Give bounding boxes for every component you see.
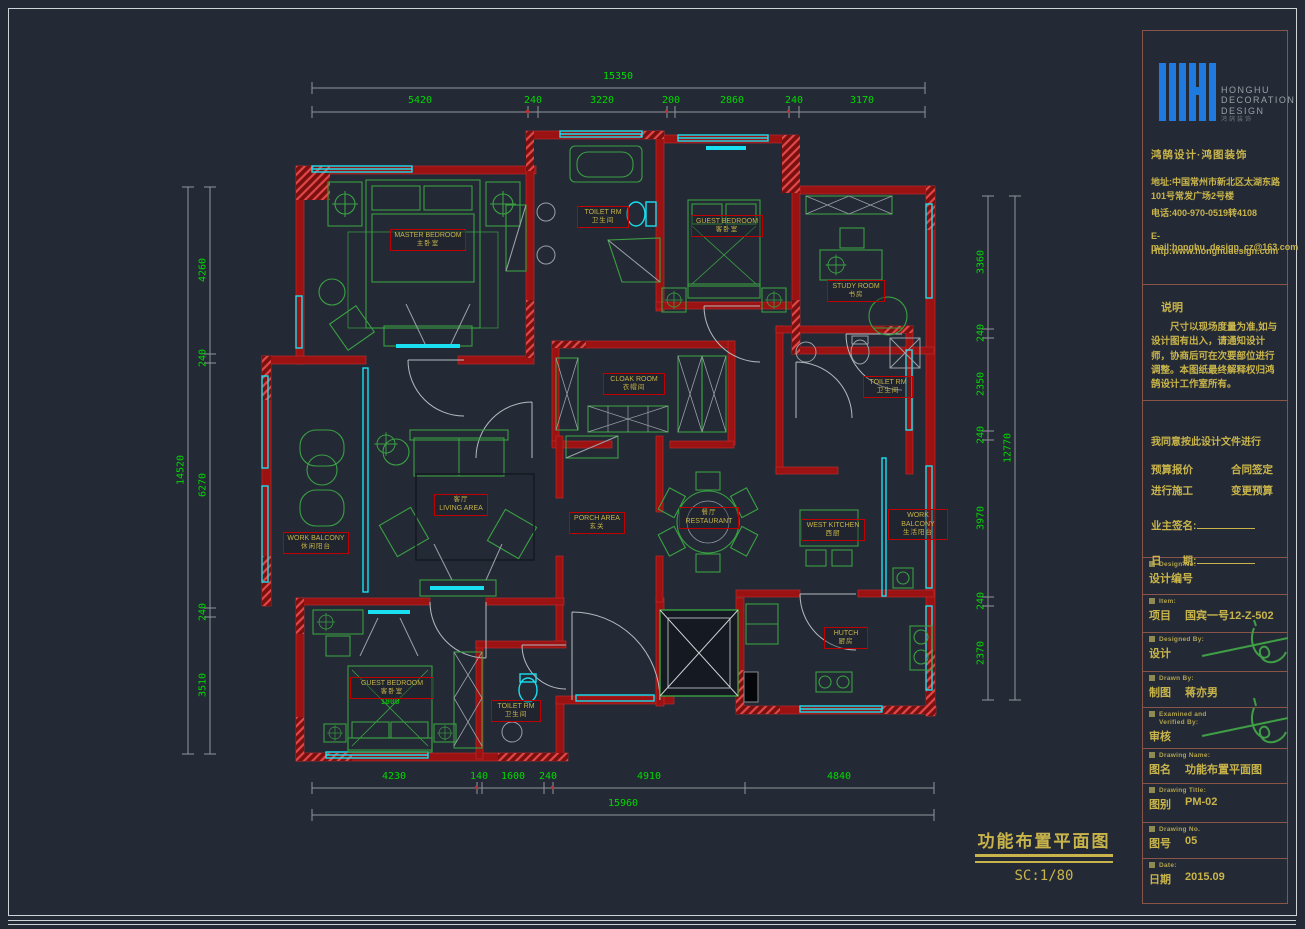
dim-right-seg: 2370	[976, 641, 987, 665]
row-en-label: Drawing Name:	[1159, 752, 1210, 759]
room-cn: 卫生间	[866, 387, 910, 395]
drawing-caption: 功能布置平面图 SC:1/80	[975, 827, 1113, 884]
dim-top-total: 15350	[603, 71, 633, 82]
logo-wordmark: HONGHU DECORATION DESIGN 鸿鹄装饰	[1221, 85, 1295, 124]
agreement-opt: 变更预算	[1231, 483, 1273, 498]
elevator-shaft	[660, 610, 738, 696]
title-block-contact-section: HONGHU DECORATION DESIGN 鸿鹄装饰 鸿鹄设计·鸿图装饰 …	[1143, 31, 1287, 284]
title-block-agreement-section: 我同意按此设计文件进行 预算报价 合同签定 进行施工 变更预算 业主签名: 日 …	[1143, 400, 1287, 557]
room-en: CLOAK ROOM	[606, 375, 662, 384]
row-en-label: Drawn By:	[1159, 675, 1194, 682]
row-item: Item: 项目国宾一号12-Z-502	[1143, 594, 1287, 632]
row-en-label: Designed By:	[1159, 636, 1204, 643]
agreement-opt: 进行施工	[1151, 483, 1193, 498]
dim-right-seg: 3360	[976, 250, 987, 274]
notes-heading: 说明	[1161, 299, 1287, 315]
row-drawing-title: Drawing Title: 图别PM-02	[1143, 783, 1287, 822]
dim-right-seg: 240	[976, 324, 987, 342]
room-cn: 衣帽间	[606, 384, 662, 392]
agreement-options-row1: 预算报价 合同签定	[1151, 462, 1273, 477]
logo-bar	[1209, 63, 1216, 121]
room-cn: 客厅	[437, 496, 485, 504]
bullet-icon	[1149, 787, 1155, 793]
room-label-toilet-bottom: TOILET RM 卫生间	[491, 700, 541, 722]
room-cn: 餐厅	[682, 509, 736, 517]
room-en: GUEST BEDROOM	[353, 679, 431, 688]
room-cn: 卫生间	[580, 217, 626, 225]
row-cn-label: 项目	[1149, 607, 1171, 623]
row-value: 功能布置平面图	[1185, 761, 1262, 777]
dim-bottom-seg: 140	[470, 771, 488, 782]
bullet-icon	[1149, 675, 1155, 681]
room-en: TOILET RM	[580, 208, 626, 217]
room-cn: 书房	[830, 291, 882, 299]
logo-bar	[1179, 63, 1186, 121]
dim-left-seg: 240	[198, 349, 209, 367]
room-en: TOILET RM	[866, 378, 910, 387]
room-cn: 厨房	[827, 638, 865, 646]
dim-bottom-seg: 240	[539, 771, 557, 782]
room-en: MASTER BEDROOM	[393, 231, 463, 240]
room-label-work-balcony-right: WORK BALCONY 生活阳台	[888, 509, 948, 540]
room-label-toilet-top: TOILET RM 卫生间	[577, 206, 629, 228]
row-value: 05	[1185, 835, 1197, 851]
website-line: Http:www.honghudesign.com	[1151, 246, 1278, 257]
row-value: PM-02	[1185, 796, 1217, 812]
row-en-label: Drawing Title:	[1159, 787, 1206, 794]
row-cn-label: 制图	[1149, 684, 1171, 700]
room-en: WORK BALCONY	[286, 534, 346, 543]
logo-line: DESIGN	[1221, 106, 1295, 116]
owner-sign-label: 业主签名:	[1151, 520, 1197, 532]
dim-bottom-seg: 1600	[501, 771, 525, 782]
row-cn-label: 图号	[1149, 835, 1171, 851]
dim-left-seg: 6270	[198, 473, 209, 497]
row-drawing-no: Drawing No. 图号05	[1143, 822, 1287, 858]
dim-top-seg: 3220	[590, 95, 614, 106]
bullet-icon	[1149, 711, 1155, 717]
room-en: LIVING AREA	[437, 504, 485, 513]
signature-rule	[1197, 518, 1255, 529]
room-en: WORK BALCONY	[891, 511, 945, 529]
row-drawing-name: Drawing Name: 图名功能布置平面图	[1143, 748, 1287, 783]
room-cn: 卫生间	[494, 711, 538, 719]
caption-underline	[975, 854, 1113, 857]
row-en-label: Item:	[1159, 598, 1176, 605]
dim-top-seg: 3170	[850, 95, 874, 106]
row-designed-by: Designed By: 设计	[1143, 632, 1287, 671]
room-label-master-bedroom: MASTER BEDROOM 主卧室	[390, 229, 466, 251]
room-label-guest-bedroom-bottom: GUEST BEDROOM 客卧室	[350, 677, 434, 699]
phone-line: 电话:400-970-0519转4108	[1151, 208, 1257, 219]
title-block: HONGHU DECORATION DESIGN 鸿鹄装饰 鸿鹄设计·鸿图装饰 …	[1142, 30, 1288, 904]
bullet-icon	[1149, 598, 1155, 604]
cad-drawing-sheet: 15350 5420 240 3220 200 2860 240 3170 42…	[0, 0, 1305, 929]
room-label-porch-area: PORCH AREA 玄关	[569, 512, 625, 534]
dim-top-seg: 5420	[408, 95, 432, 106]
row-date: Date: 日期2015.09	[1143, 858, 1287, 905]
logo-connector	[1189, 87, 1201, 95]
agreement-opt: 合同签定	[1231, 462, 1273, 477]
row-value: 国宾一号12-Z-502	[1185, 607, 1274, 623]
row-en-label: Examined and	[1159, 711, 1207, 718]
drawing-scale: SC:1/80	[975, 868, 1113, 884]
dim-left-total: 14520	[176, 455, 187, 485]
date-signature-line: 日 期:	[1151, 553, 1279, 568]
room-cn: 玄关	[572, 523, 622, 531]
logo-bar	[1169, 63, 1176, 121]
row-value: 2015.09	[1185, 871, 1225, 887]
address-line1: 地址:中国常州市新北区太湖东路	[1151, 177, 1280, 188]
dim-right-total: 12770	[1003, 433, 1014, 463]
dim-top-seg: 200	[662, 95, 680, 106]
row-en-label: Date:	[1159, 862, 1177, 869]
room-en: PORCH AREA	[572, 514, 622, 523]
room-cn: 西厨	[804, 530, 862, 538]
logo-cn: 鸿鹄装饰	[1221, 117, 1295, 124]
caption-underline	[975, 861, 1113, 863]
dim-left-seg: 4260	[198, 258, 209, 282]
address-line2: 101号常发广场2号楼	[1151, 191, 1234, 202]
room-cn: 客卧室	[353, 688, 431, 696]
dim-right-seg: 240	[976, 426, 987, 444]
row-value: 蒋亦男	[1185, 684, 1218, 700]
drawing-caption-title: 功能布置平面图	[975, 827, 1113, 852]
dim-right-seg: 3970	[976, 506, 987, 530]
row-en-label: Drawing No.	[1159, 826, 1200, 833]
dim-bottom-seg: 4910	[637, 771, 661, 782]
honghu-logo	[1159, 63, 1216, 121]
room-en: HUTCH	[827, 629, 865, 638]
owner-signature-line: 业主签名:	[1151, 518, 1279, 533]
dim-bottom-seg: 4230	[382, 771, 406, 782]
dim-top-seg: 2860	[720, 95, 744, 106]
bullet-icon	[1149, 752, 1155, 758]
room-label-living-area: 客厅 LIVING AREA	[434, 494, 488, 516]
room-en: STUDY ROOM	[830, 282, 882, 291]
dim-right-seg: 240	[976, 592, 987, 610]
room-cn: 主卧室	[393, 240, 463, 248]
room-cn: 客卧室	[694, 226, 760, 234]
room-label-west-kitchen: WEST KITCHEN 西厨	[801, 519, 865, 541]
date-sign-label: 日 期:	[1151, 555, 1197, 567]
room-cn: 生活阳台	[891, 529, 945, 537]
room-cn: 休闲阳台	[286, 543, 346, 551]
floor-plan-drawing	[0, 0, 1305, 929]
room-label-work-balcony-left: WORK BALCONY 休闲阳台	[283, 532, 349, 554]
dim-left-seg: 3510	[198, 673, 209, 697]
room-en: WEST KITCHEN	[804, 521, 862, 530]
row-cn-label: 设计编号	[1149, 570, 1193, 586]
dim-top-seg: 240	[785, 95, 803, 106]
dim-right-seg: 2350	[976, 372, 987, 396]
logo-bar	[1159, 63, 1166, 121]
agreement-line: 我同意按此设计文件进行	[1151, 433, 1279, 448]
bullet-icon	[1149, 636, 1155, 642]
signature-rule	[1197, 553, 1255, 564]
room-en: GUEST BEDROOM	[694, 217, 760, 226]
notes-body: 尺寸以现场度量为准,如与设计图有出入，请通知设计师，协商后可在次要部位进行调整。…	[1151, 321, 1279, 392]
row-cn-label: 审核	[1149, 728, 1171, 744]
room-label-toilet-right: TOILET RM 卫生间	[863, 376, 913, 398]
room-label-cloak-room: CLOAK ROOM 衣帽间	[603, 373, 665, 395]
brand-line: 鸿鹄设计·鸿图装饰	[1151, 147, 1248, 162]
room-label-hutch: HUTCH 厨房	[824, 627, 868, 649]
dim-bottom-total: 15960	[608, 798, 638, 809]
room-en: TOILET RM	[494, 702, 538, 711]
row-cn-label: 图别	[1149, 796, 1171, 812]
row-drawn-by: Drawn By: 制图蒋亦男	[1143, 671, 1287, 707]
room-label-guest-bedroom-top: GUEST BEDROOM 客卧室	[691, 215, 763, 237]
agreement-options-row2: 进行施工 变更预算	[1151, 483, 1273, 498]
row-examined: Examined and Verified By: 审核	[1143, 707, 1287, 748]
row-cn-label: 图名	[1149, 761, 1171, 777]
title-block-notes-section: 说明 尺寸以现场度量为准,如与设计图有出入，请通知设计师，协商后可在次要部位进行…	[1143, 284, 1287, 400]
logo-line: HONGHU	[1221, 85, 1295, 95]
dim-top-seg: 240	[524, 95, 542, 106]
bullet-icon	[1149, 862, 1155, 868]
row-cn-label: 日期	[1149, 871, 1171, 887]
row-en-label2: Verified By:	[1159, 719, 1198, 726]
dim-left-seg: 240	[198, 603, 209, 621]
room-en: RESTAURANT	[682, 517, 736, 526]
bullet-icon	[1149, 826, 1155, 832]
row-cn-label: 设计	[1149, 645, 1171, 661]
room-label-restaurant: 餐厅 RESTAURANT	[679, 507, 739, 529]
agreement-opt: 预算报价	[1151, 462, 1193, 477]
room-label-study-room: STUDY ROOM 书房	[827, 280, 885, 302]
logo-line: DECORATION	[1221, 95, 1295, 105]
dim-bottom-seg: 4840	[827, 771, 851, 782]
